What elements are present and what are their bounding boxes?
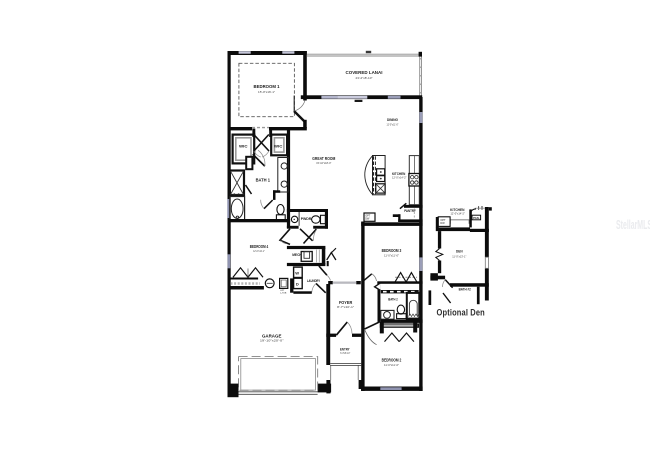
svg-text:StellarMLS: StellarMLS (616, 217, 650, 232)
svg-text:8'-7"x10'-1": 8'-7"x10'-1" (337, 305, 354, 309)
svg-text:W: W (295, 271, 299, 276)
svg-text:MECH: MECH (292, 253, 302, 257)
svg-text:23'-2"x8'-10": 23'-2"x8'-10" (356, 76, 373, 80)
svg-text:PWDR: PWDR (301, 217, 312, 221)
svg-text:WIC: WIC (239, 144, 248, 148)
svg-text:Optional Den: Optional Den (437, 307, 485, 318)
svg-text:BATH 2: BATH 2 (388, 298, 397, 302)
svg-text:PANTRY: PANTRY (404, 209, 416, 213)
svg-text:D: D (296, 282, 299, 287)
svg-text:LAUNDRY: LAUNDRY (307, 279, 321, 283)
svg-text:DEN: DEN (456, 249, 463, 253)
svg-text:PAN.: PAN. (473, 216, 480, 220)
svg-text:12'-0"x11'-0": 12'-0"x11'-0" (387, 122, 399, 126)
svg-text:BATH #2: BATH #2 (459, 287, 471, 291)
svg-text:DW: DW (365, 218, 370, 221)
svg-text:GARAGE: GARAGE (262, 333, 282, 338)
svg-text:WIC: WIC (274, 144, 283, 148)
svg-text:11'-0"x11'-0": 11'-0"x11'-0" (384, 363, 399, 367)
svg-text:L-TUB: L-TUB (280, 293, 287, 295)
svg-text:15'-0"x16'-1": 15'-0"x16'-1" (258, 90, 275, 94)
svg-text:DW: DW (440, 222, 445, 225)
svg-text:BATH 1: BATH 1 (256, 178, 271, 183)
svg-text:15'-10"x18'-0": 15'-10"x18'-0" (316, 161, 331, 165)
svg-text:19'-10"x20'-0": 19'-10"x20'-0" (260, 339, 284, 343)
svg-text:12'-0"x11'-1": 12'-0"x11'-1" (253, 249, 265, 253)
svg-text:6'-3"x8'-10": 6'-3"x8'-10" (340, 351, 350, 355)
svg-text:11'-0"x13'-1": 11'-0"x13'-1" (452, 254, 466, 258)
svg-text:12'-0"x14'-2": 12'-0"x14'-2" (451, 211, 465, 215)
svg-text:BEDROOM 1: BEDROOM 1 (254, 84, 280, 89)
svg-text:COVERED LANAI: COVERED LANAI (346, 70, 383, 75)
svg-text:11'-0"x11'-0": 11'-0"x11'-0" (384, 253, 399, 257)
svg-text:12'-0"x14'-2": 12'-0"x14'-2" (392, 176, 407, 180)
